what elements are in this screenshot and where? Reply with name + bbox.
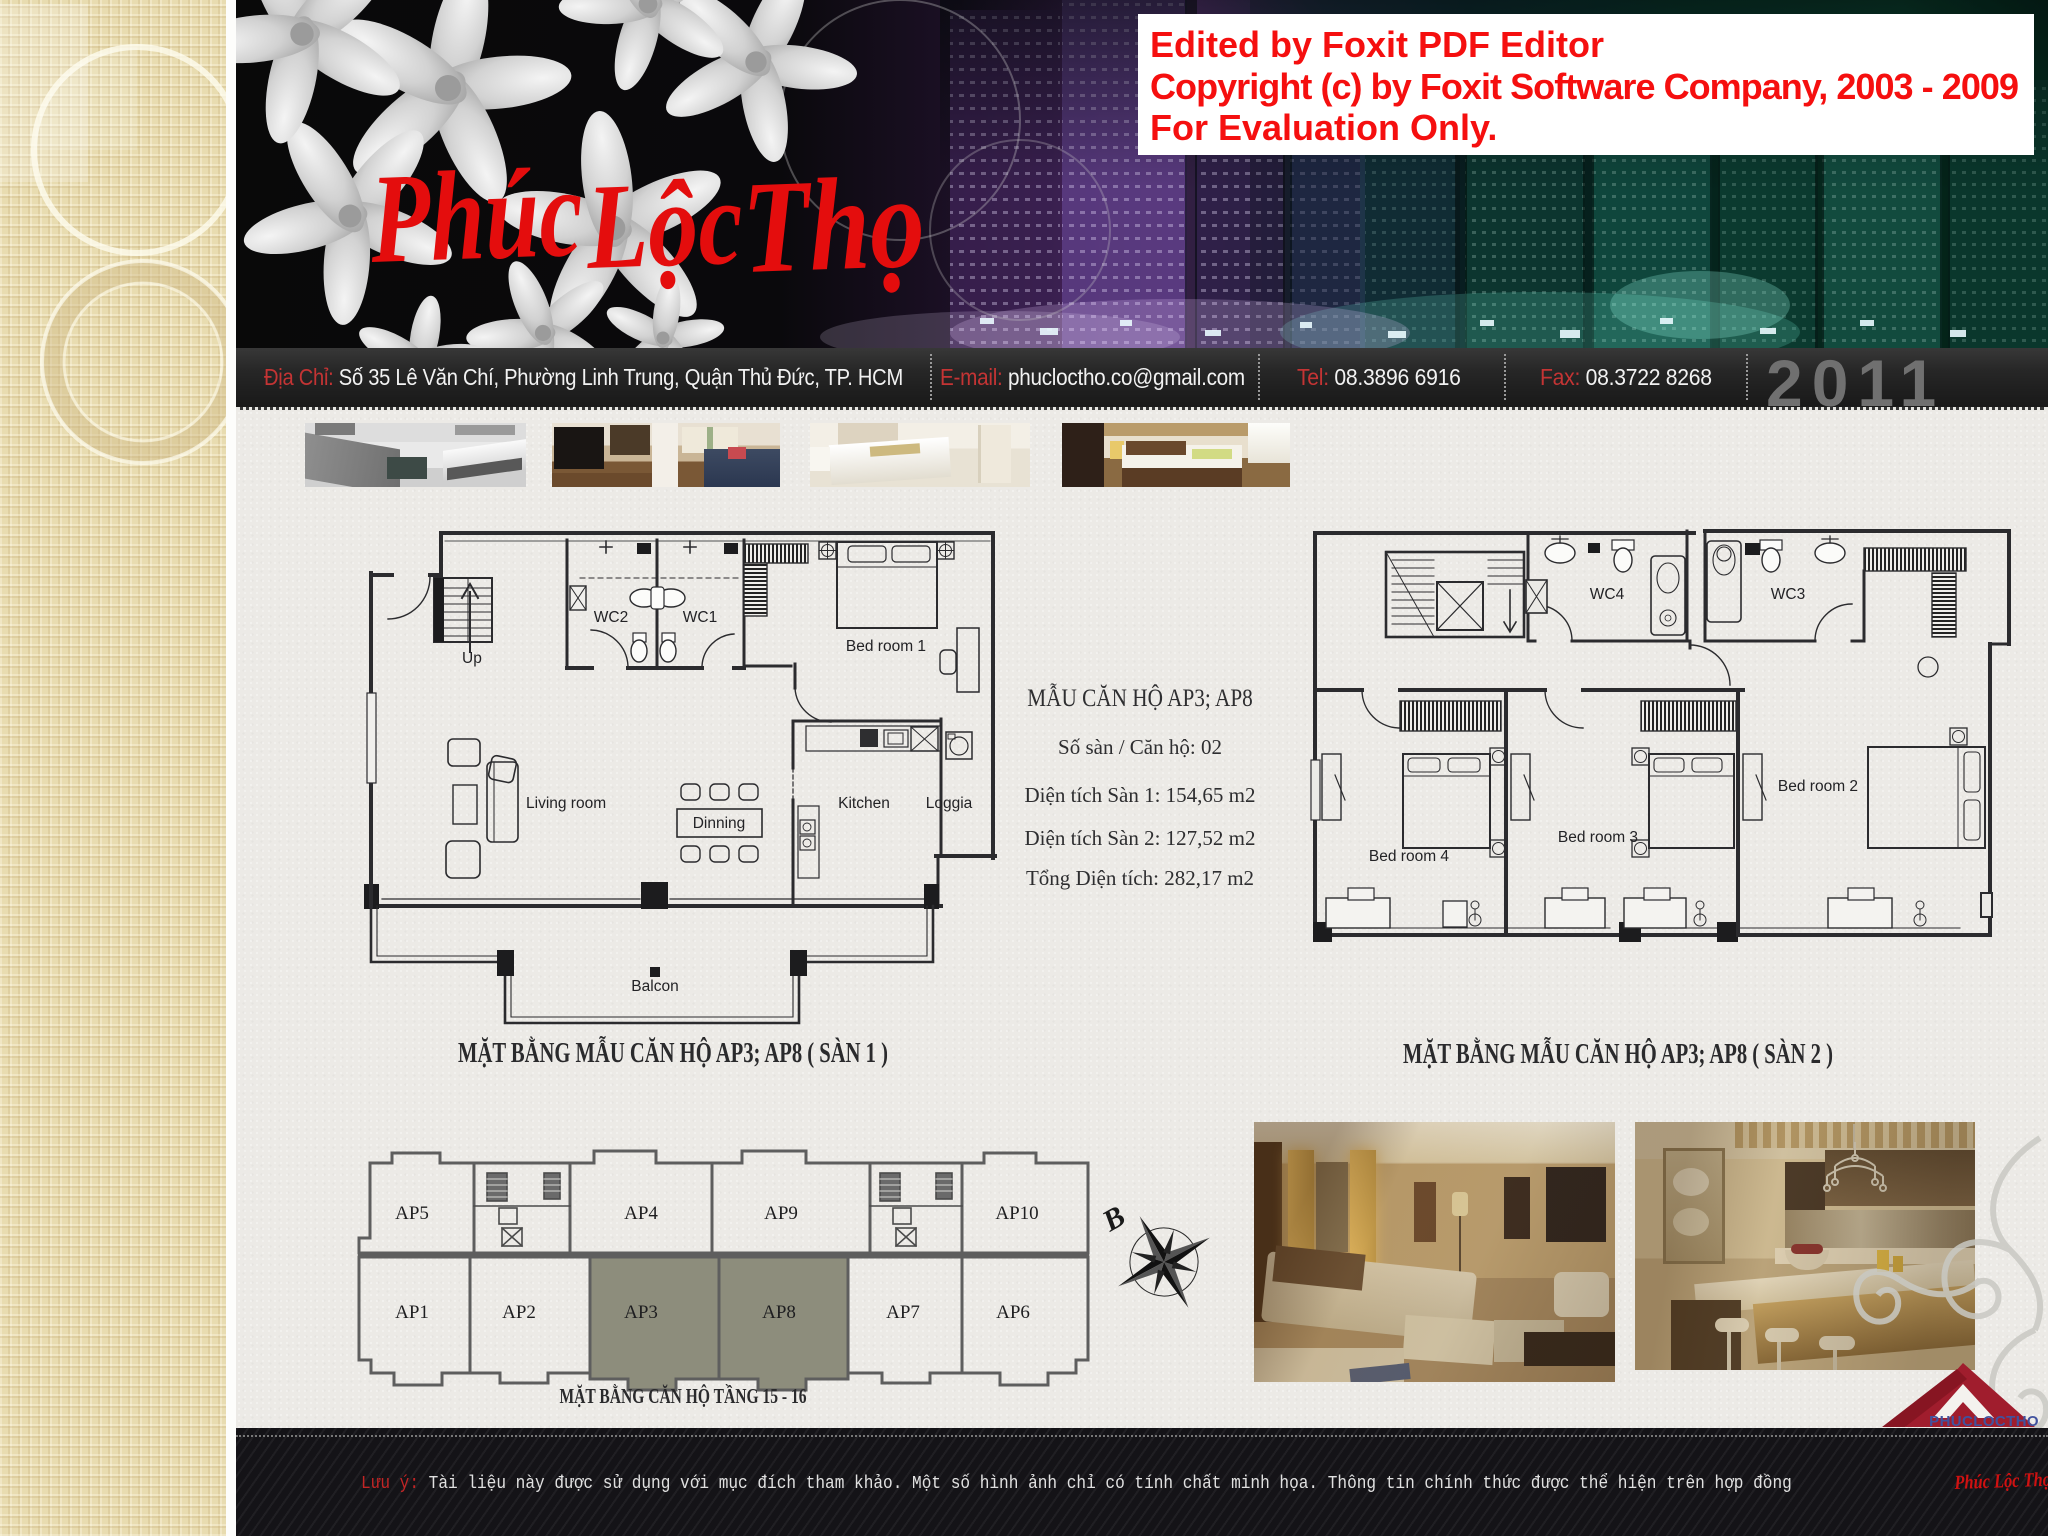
svg-text:AP4: AP4	[624, 1203, 658, 1224]
svg-text:AP10: AP10	[995, 1203, 1038, 1224]
svg-text:Loggia: Loggia	[926, 795, 973, 812]
svg-text:MẶT BẰNG MẪU CĂN HỘ AP3; AP8 (: MẶT BẰNG MẪU CĂN HỘ AP3; AP8 ( SÀN 1 )	[458, 1035, 888, 1069]
svg-text:Thọ: Thọ	[740, 148, 927, 301]
svg-text:MẶT BẰNG CĂN HỘ TẦNG 15 - 16: MẶT BẰNG CĂN HỘ TẦNG 15 - 16	[560, 1384, 807, 1408]
svg-text:AP7: AP7	[886, 1302, 920, 1323]
svg-text:B: B	[1096, 1199, 1131, 1238]
svg-text:Up: Up	[462, 650, 482, 667]
svg-text:WC4: WC4	[1590, 586, 1625, 603]
svg-text:AP6: AP6	[996, 1302, 1030, 1323]
svg-text:Bed room 1: Bed room 1	[846, 638, 926, 655]
svg-text:AP2: AP2	[502, 1302, 536, 1323]
svg-text:Bed room 4: Bed room 4	[1369, 848, 1450, 865]
svg-text:Edited by Foxit PDF Editor: Edited by Foxit PDF Editor	[1150, 24, 1604, 65]
svg-text:WC1: WC1	[683, 609, 717, 626]
svg-text:MẶT BẰNG MẪU CĂN HỘ AP3; AP8 (: MẶT BẰNG MẪU CĂN HỘ AP3; AP8 ( SÀN 2 )	[1403, 1036, 1833, 1070]
svg-text:Phúc: Phúc	[367, 141, 585, 290]
svg-text:AP5: AP5	[395, 1203, 429, 1224]
svg-text:Copyright (c) by Foxit Softwar: Copyright (c) by Foxit Software Company,…	[1150, 66, 2019, 107]
svg-text:Bed room 2: Bed room 2	[1778, 778, 1858, 795]
svg-text:AP3: AP3	[624, 1302, 658, 1323]
svg-text:For Evaluation Only.: For Evaluation Only.	[1150, 107, 1497, 148]
svg-text:WC3: WC3	[1771, 586, 1805, 603]
svg-text:Lộc: Lộc	[583, 155, 744, 295]
svg-text:Living room: Living room	[526, 795, 606, 812]
svg-text:AP1: AP1	[395, 1302, 429, 1323]
svg-text:Balcon: Balcon	[631, 978, 678, 995]
svg-text:Bed room 3: Bed room 3	[1558, 829, 1638, 846]
svg-text:AP9: AP9	[764, 1203, 798, 1224]
svg-text:Dinning: Dinning	[693, 815, 746, 832]
svg-text:AP8: AP8	[762, 1302, 796, 1323]
svg-text:Kitchen: Kitchen	[838, 795, 890, 812]
svg-text:WC2: WC2	[594, 609, 628, 626]
